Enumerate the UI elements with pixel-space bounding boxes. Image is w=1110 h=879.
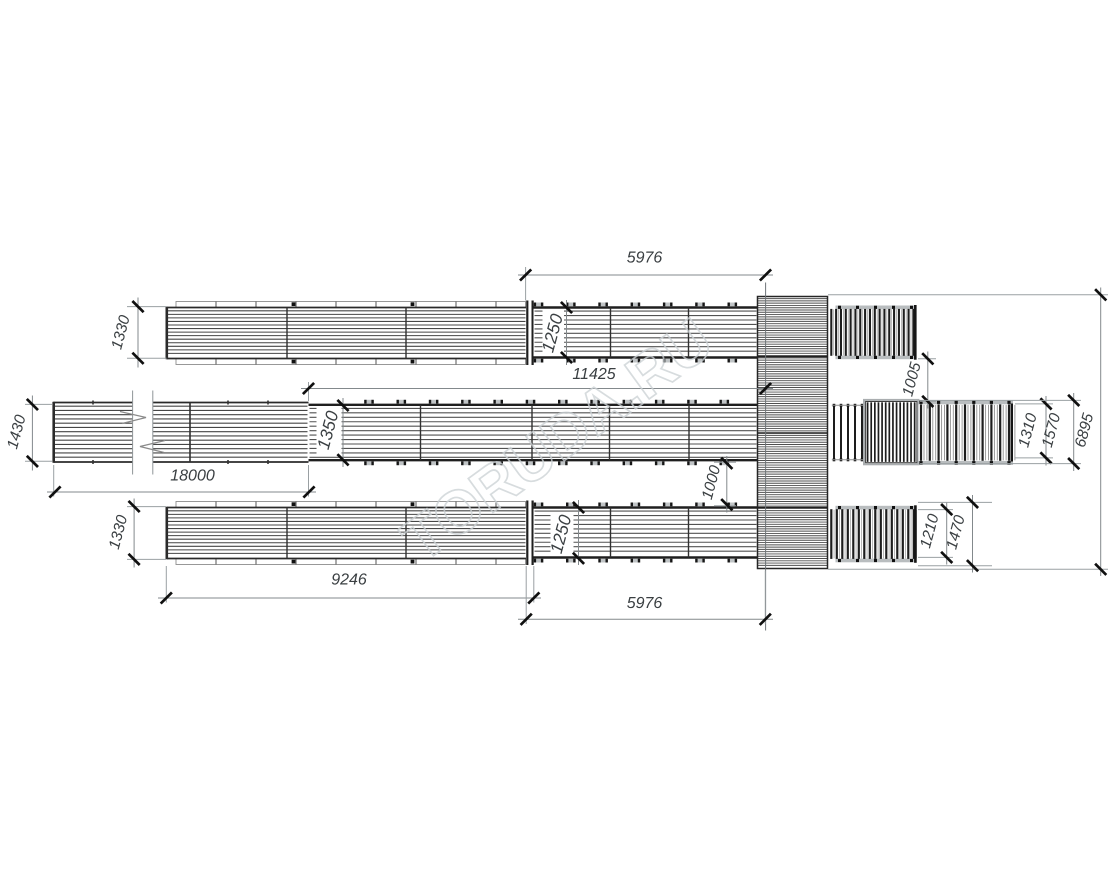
svg-text:1000: 1000 — [699, 463, 724, 501]
svg-text:1330: 1330 — [106, 513, 131, 551]
svg-text:1330: 1330 — [108, 313, 133, 351]
svg-text:1210: 1210 — [917, 512, 942, 550]
svg-text:1470: 1470 — [943, 513, 968, 551]
svg-text:6895: 6895 — [1072, 411, 1097, 449]
svg-text:1310: 1310 — [1015, 411, 1040, 449]
svg-text:1570: 1570 — [1039, 411, 1064, 449]
svg-text:9246: 9246 — [331, 572, 367, 589]
svg-text:5976: 5976 — [627, 595, 663, 612]
svg-text:1005: 1005 — [899, 360, 924, 398]
svg-text:18000: 18000 — [170, 468, 215, 485]
svg-text:5976: 5976 — [627, 250, 663, 267]
svg-text:1430: 1430 — [4, 413, 29, 451]
